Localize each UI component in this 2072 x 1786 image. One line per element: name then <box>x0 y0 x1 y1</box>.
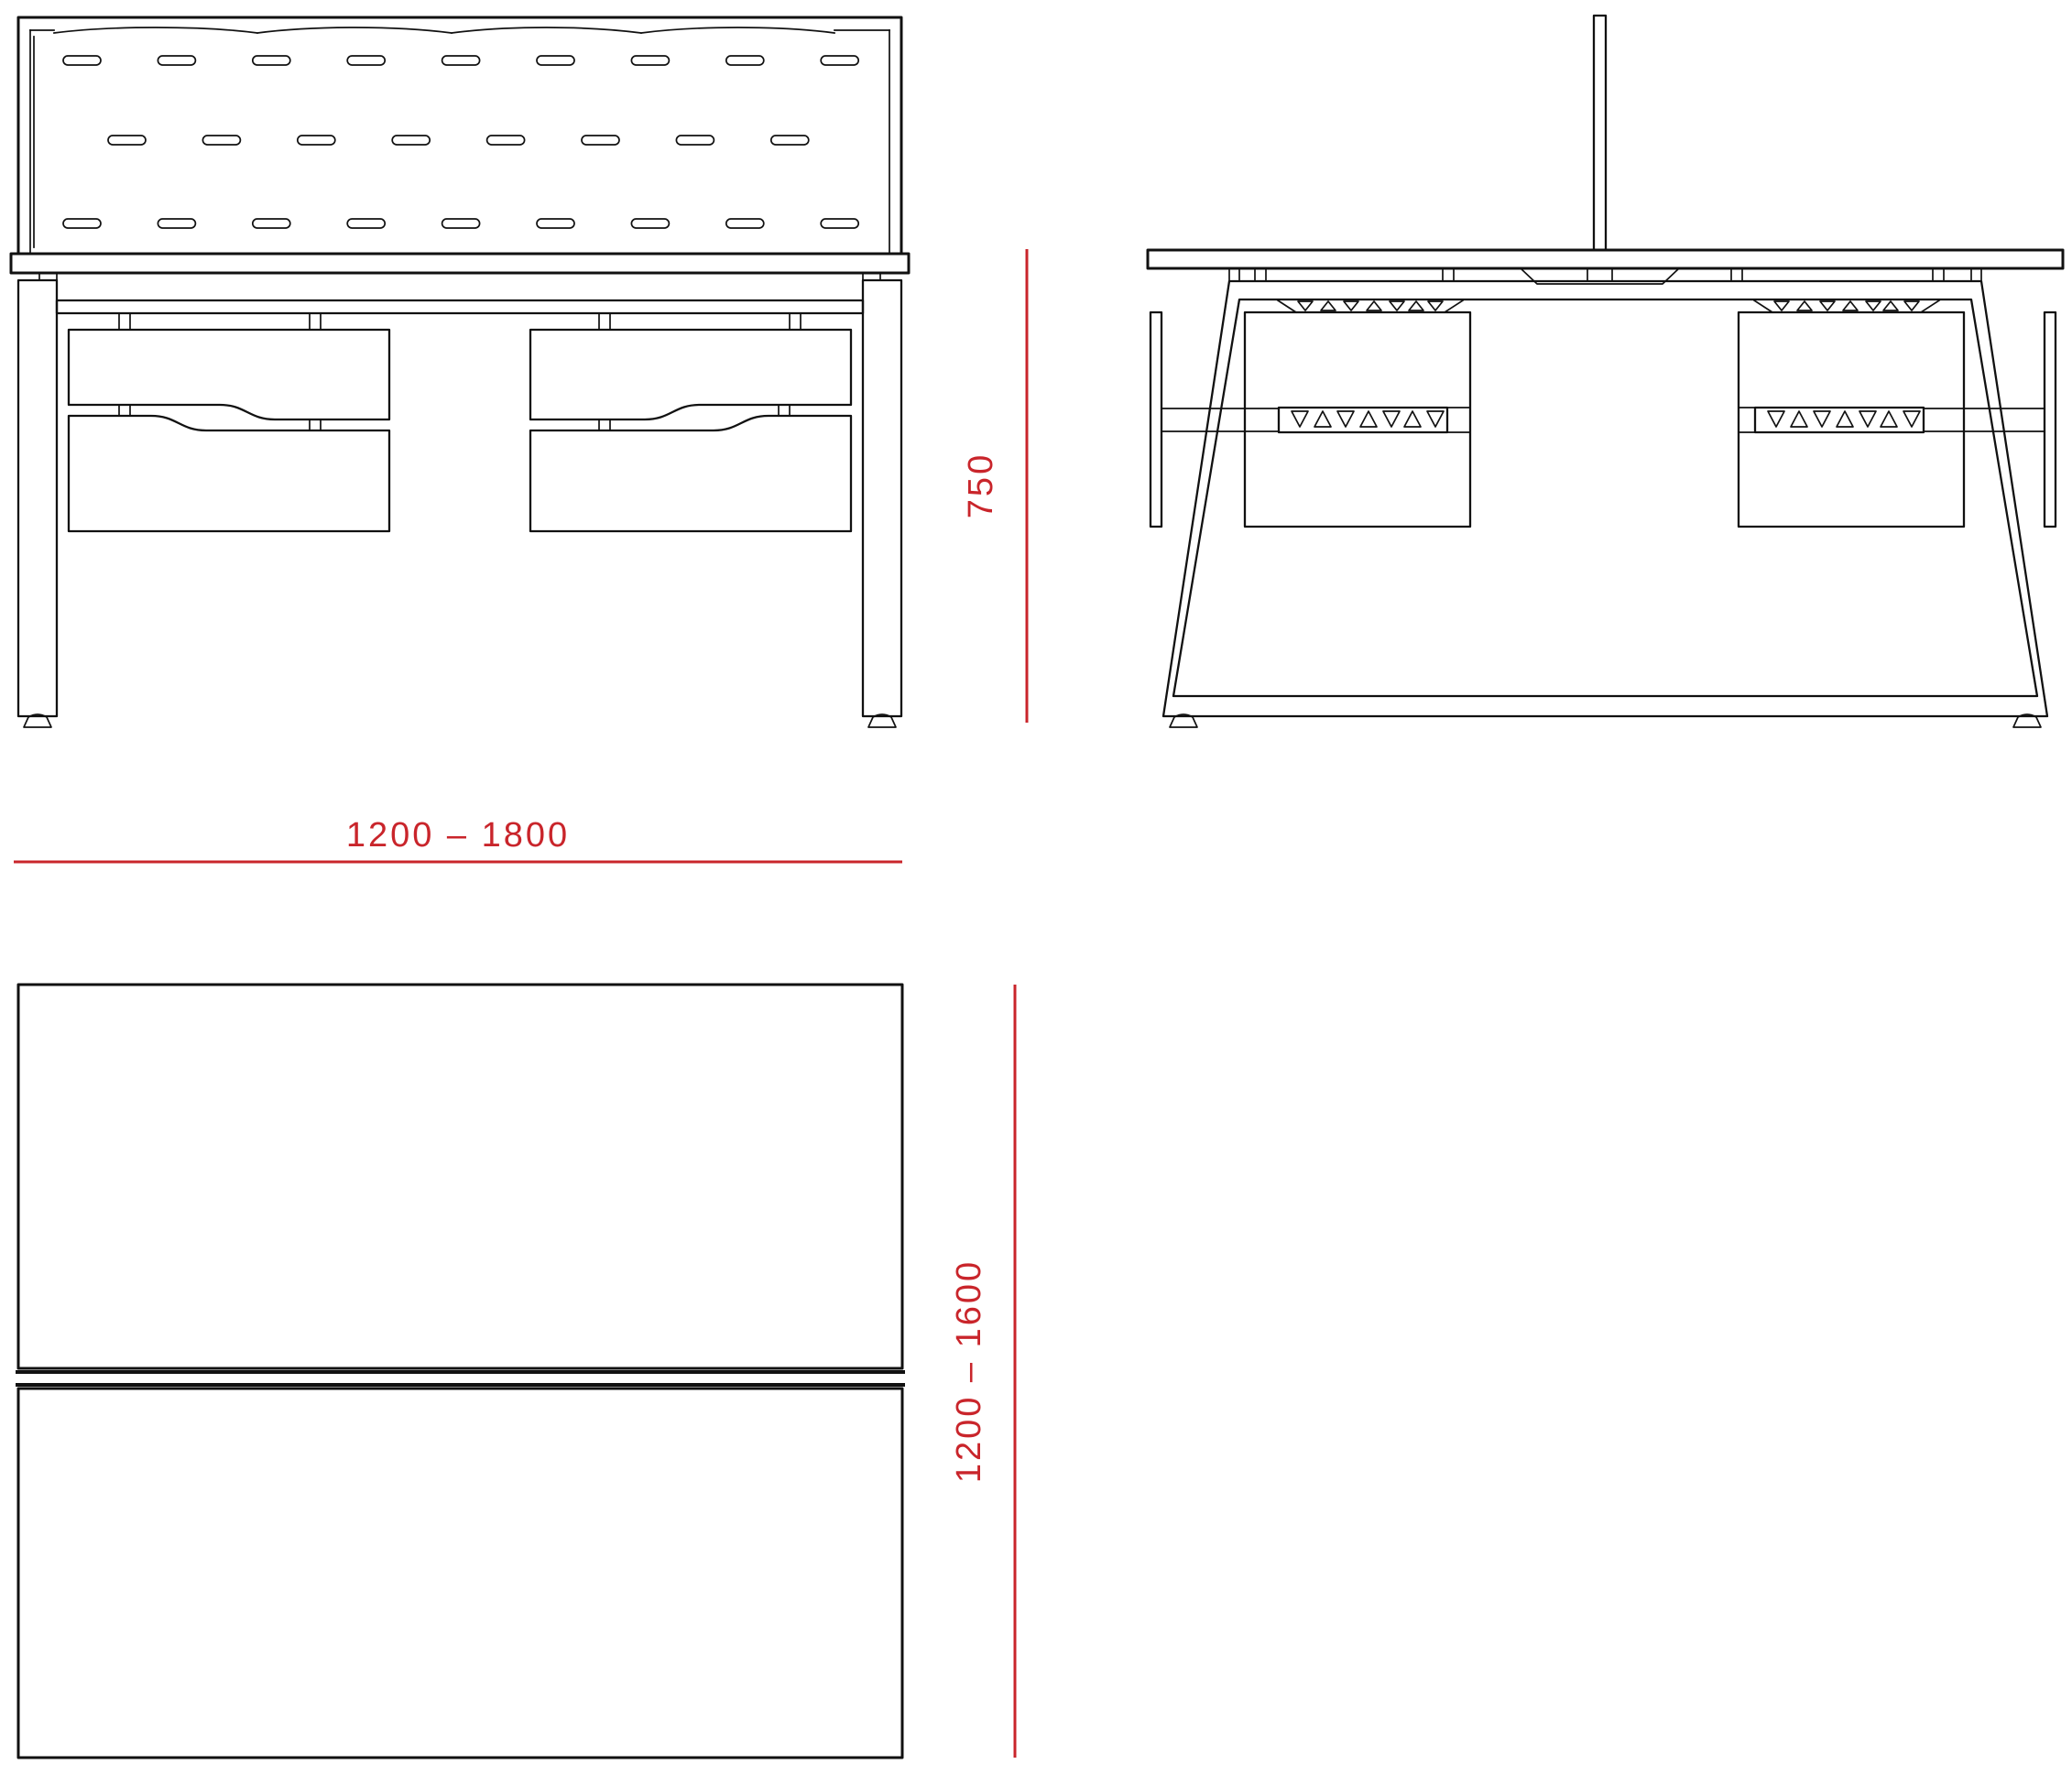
front-feet-glides <box>24 714 896 727</box>
screen-slot <box>726 219 764 228</box>
screen-slot <box>726 56 764 65</box>
screen-slot <box>202 136 240 145</box>
triangle-down <box>1774 301 1789 310</box>
triangle-down <box>1390 301 1404 310</box>
side-left-leg-top-tab <box>1229 268 1239 281</box>
drawer-hanger-tab <box>119 405 130 416</box>
front-under-desk-rail <box>57 300 863 313</box>
triangle-down <box>1820 301 1835 310</box>
slab-hanger-tab <box>1731 268 1742 281</box>
front-drawer-hanger-tabs <box>119 313 801 430</box>
front-screen-perforation-slots <box>63 56 858 228</box>
dimension-label-width: 1200 – 1800 <box>346 816 570 855</box>
screen-slot <box>537 219 574 228</box>
screen-slot <box>771 136 809 145</box>
front-pedestal2-bottom-drawer <box>530 416 851 531</box>
side-screen-bracket <box>1587 268 1612 281</box>
triangle-down <box>1383 411 1400 427</box>
drawer-hanger-tab <box>310 313 321 330</box>
screen-slot <box>631 56 669 65</box>
screen-slot <box>821 219 858 228</box>
drawer-hanger-tab <box>119 313 130 330</box>
screen-slot <box>676 136 714 145</box>
screen-slot <box>537 56 574 65</box>
triangle-up <box>1797 301 1812 310</box>
triangle-up <box>1409 301 1423 310</box>
side-leg-frame-inner <box>1173 299 2037 696</box>
triangle-down <box>1344 301 1358 310</box>
screen-slot <box>821 56 858 65</box>
triangle-down <box>1859 411 1876 427</box>
dimension-label-height: 750 <box>962 452 1000 518</box>
front-left-leg <box>18 280 57 716</box>
dimension-annotations: 1200 – 1800 750 1200 – 1600 <box>14 249 1027 1758</box>
drawer-hanger-tab <box>599 313 610 330</box>
triangle-up <box>1883 301 1898 310</box>
screen-slot <box>631 219 669 228</box>
triangle-down <box>1428 301 1443 310</box>
triangle-up <box>1791 411 1807 427</box>
screen-slot <box>347 56 385 65</box>
front-pedestal1-bottom-drawer <box>69 416 389 531</box>
triangle-down <box>1768 411 1784 427</box>
triangle-down <box>1903 411 1920 427</box>
side-left-end-post <box>1151 312 1161 527</box>
screen-slot <box>253 56 290 65</box>
plan-desktop-2 <box>18 1389 902 1758</box>
front-pedestal1-top-drawer <box>69 330 389 419</box>
screen-slot <box>253 219 290 228</box>
triangle-down <box>1298 301 1313 310</box>
screen-slot <box>158 219 195 228</box>
desk-dimensions-drawing: 1200 – 1800 750 1200 – 1600 <box>0 0 2072 1786</box>
screen-slot <box>442 56 480 65</box>
triangle-up <box>1321 301 1336 310</box>
screen-slot <box>298 136 335 145</box>
triangle-down <box>1814 411 1830 427</box>
screen-slot <box>108 136 146 145</box>
triangle-down <box>1904 301 1919 310</box>
plan-view <box>17 985 903 1758</box>
slab-hanger-tab <box>1255 268 1266 281</box>
triangle-up <box>1843 301 1858 310</box>
front-screen-top-wave <box>30 27 889 33</box>
triangle-down <box>1427 411 1444 427</box>
screen-slot <box>158 56 195 65</box>
screen-slot <box>487 136 525 145</box>
triangle-down <box>1866 301 1881 310</box>
front-desktop <box>11 254 909 273</box>
screen-slot <box>442 219 480 228</box>
side-leg-frame-outer <box>1163 281 2047 716</box>
side-right-leg-top-tab <box>1971 268 1981 281</box>
triangle-down <box>1337 411 1354 427</box>
screen-slot <box>63 219 101 228</box>
drawer-hanger-tab <box>310 419 321 430</box>
side-desktop <box>1148 250 2063 268</box>
drawer-hanger-tab <box>790 313 801 330</box>
triangle-down <box>1292 411 1308 427</box>
screen-slot <box>347 219 385 228</box>
triangle-up <box>1404 411 1421 427</box>
technical-drawing-page: 1200 – 1800 750 1200 – 1600 <box>0 0 2072 1786</box>
screen-slot <box>392 136 430 145</box>
side-centre-screen <box>1594 16 1606 250</box>
triangle-up <box>1837 411 1853 427</box>
slab-hanger-tab <box>1443 268 1454 281</box>
side-slab-hanger-tabs <box>1255 268 1944 281</box>
drawer-hanger-tab <box>599 419 610 430</box>
front-right-leg <box>863 280 901 716</box>
front-pedestal2-top-drawer <box>530 330 851 419</box>
front-view <box>11 17 909 727</box>
slab-hanger-tab <box>1933 268 1944 281</box>
side-right-end-post <box>2045 312 2056 527</box>
triangle-up <box>1314 411 1331 427</box>
screen-slot <box>63 56 101 65</box>
side-view <box>1148 16 2063 727</box>
triangle-up <box>1360 411 1377 427</box>
plan-desktop-1 <box>18 985 902 1368</box>
drawer-hanger-tab <box>779 405 790 416</box>
triangle-up <box>1367 301 1381 310</box>
dimension-label-depth: 1200 – 1600 <box>950 1259 988 1483</box>
triangle-up <box>1881 411 1897 427</box>
screen-slot <box>582 136 619 145</box>
